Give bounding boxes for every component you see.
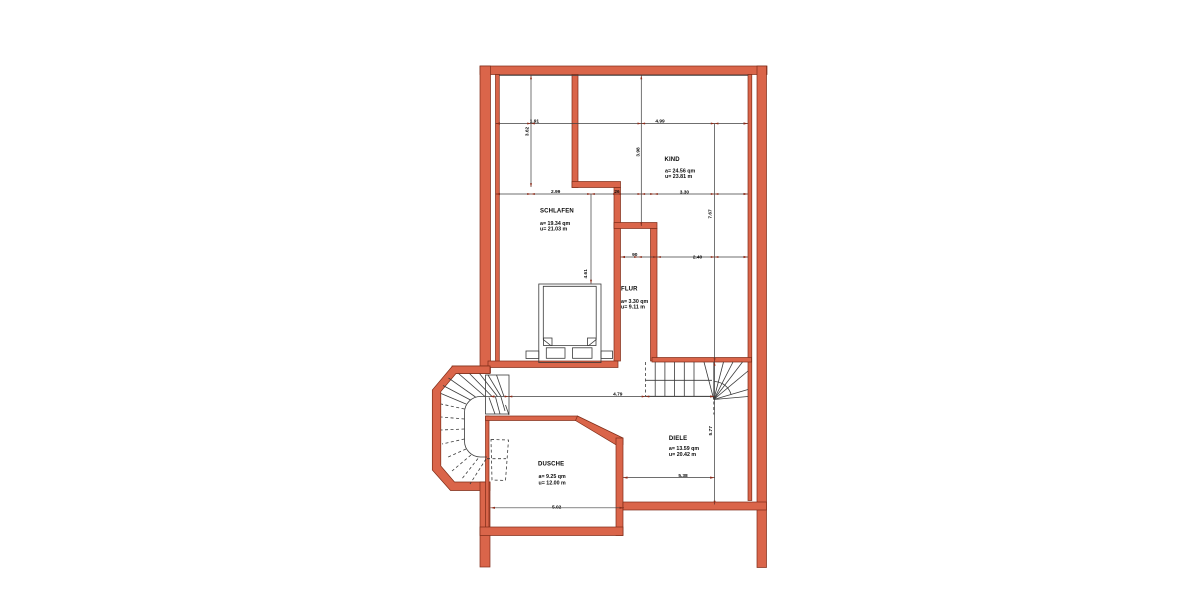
- svg-text:4.79: 4.79: [613, 392, 623, 398]
- svg-text:5.38: 5.38: [678, 473, 688, 479]
- svg-text:4.99: 4.99: [655, 119, 665, 125]
- svg-text:DIELE: DIELE: [669, 436, 687, 442]
- svg-text:2.99: 2.99: [551, 189, 561, 195]
- svg-text:7.67: 7.67: [708, 209, 714, 219]
- svg-text:u= 12.00 m: u= 12.00 m: [539, 481, 567, 487]
- svg-text:KIND: KIND: [665, 157, 681, 163]
- svg-text:26: 26: [614, 189, 620, 195]
- svg-text:DUSCHE: DUSCHE: [538, 462, 564, 468]
- svg-text:2.40: 2.40: [693, 255, 703, 261]
- svg-text:1.91: 1.91: [530, 118, 540, 124]
- svg-text:5.77: 5.77: [708, 426, 714, 436]
- svg-text:3.98: 3.98: [636, 147, 642, 157]
- svg-text:90: 90: [632, 252, 638, 258]
- svg-text:a= 9.25 qm: a= 9.25 qm: [539, 474, 567, 480]
- svg-text:4.61: 4.61: [583, 269, 589, 279]
- svg-text:u= 9.11 m: u= 9.11 m: [621, 304, 645, 310]
- svg-text:SCHLAFEN: SCHLAFEN: [540, 209, 574, 215]
- svg-text:3.30: 3.30: [680, 190, 690, 196]
- svg-text:3.62: 3.62: [524, 127, 530, 137]
- svg-text:FLUR: FLUR: [621, 287, 638, 293]
- svg-text:5.02: 5.02: [552, 505, 562, 511]
- svg-text:u= 23.81 m: u= 23.81 m: [665, 174, 693, 180]
- svg-text:u= 21.03 m: u= 21.03 m: [540, 226, 568, 232]
- svg-text:u= 20.42 m: u= 20.42 m: [669, 452, 697, 458]
